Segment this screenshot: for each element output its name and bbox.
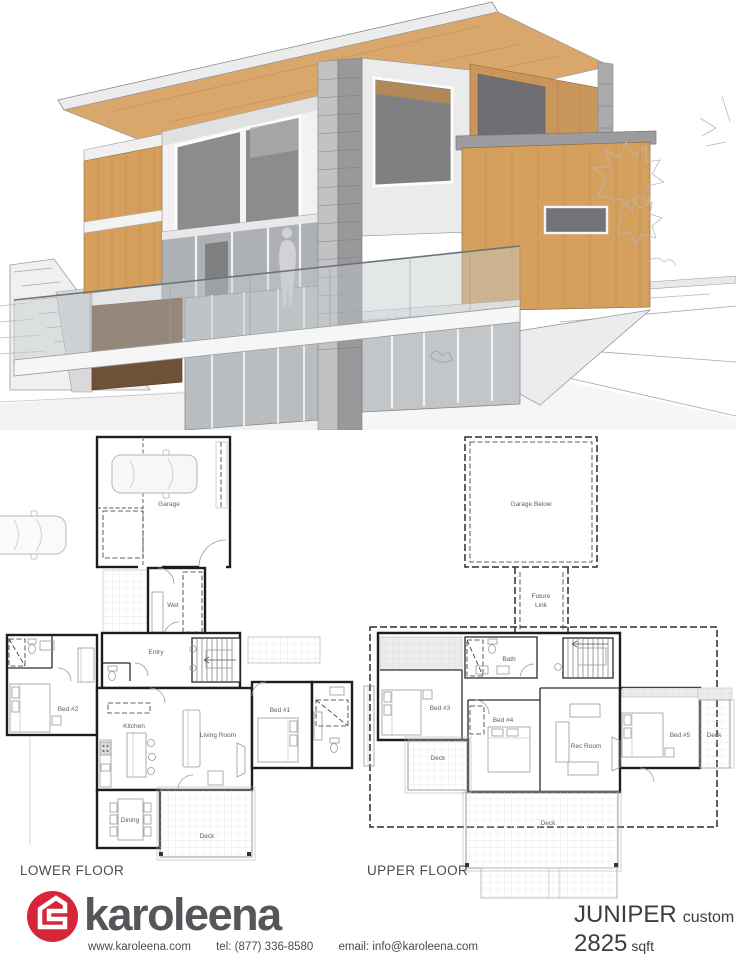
- lower-floor-plan: Garage Wet Entry: [0, 437, 352, 860]
- entry-hall: Entry: [102, 633, 320, 688]
- bed1-wing: Bed #1: [252, 682, 352, 768]
- area-unit: sqft: [631, 938, 654, 954]
- house-logo-icon: [27, 891, 78, 942]
- entry-porch: [248, 637, 320, 663]
- room-label-bed5: Bed #5: [670, 732, 691, 739]
- garage-below: Garage Below: [465, 437, 597, 567]
- room-label-kitchen: Kitchen: [123, 723, 145, 730]
- email-text: email: info@karoleena.com: [339, 941, 479, 953]
- room-label-garage-below: Garage Below: [510, 501, 551, 508]
- roof-hatch-right: [622, 688, 698, 697]
- floor-plans: Garage Wet Entry: [0, 430, 736, 905]
- floor-label-upper: UPPER FLOOR: [367, 863, 468, 878]
- staircase-lower: [190, 638, 240, 682]
- phone-text: tel: (877) 336-8580: [216, 941, 313, 953]
- staircase-upper: [555, 638, 613, 678]
- room-label-deck-left: Deck: [431, 755, 447, 762]
- room-label-bed1: Bed #1: [270, 707, 291, 714]
- left-wood-volume: [84, 134, 162, 294]
- room-label-wet: Wet: [167, 602, 179, 609]
- area-value: 2825: [574, 930, 627, 957]
- upper-floor-plan: Garage Below Future Link: [364, 437, 734, 898]
- room-label-bath: Bath: [502, 656, 516, 663]
- room-label-deck-bottom: Deck: [541, 820, 557, 827]
- upper-bath: Bath: [465, 637, 537, 678]
- model-name: JUNIPER: [574, 901, 677, 928]
- bed2-wing: Bed #2: [7, 635, 97, 735]
- upper-deck-right: Deck: [700, 700, 734, 768]
- room-label-entry: Entry: [148, 649, 164, 656]
- room-label-deck-right: Deck: [707, 732, 723, 739]
- room-label-bed3: Bed #3: [430, 705, 451, 712]
- future-link: Future Link: [515, 567, 568, 633]
- room-label-bed4: Bed #4: [493, 717, 514, 724]
- balcony-rail-strip: [364, 686, 374, 766]
- floor-label-lower: LOWER FLOOR: [20, 863, 124, 878]
- lower-deck: Deck: [157, 787, 255, 860]
- model-variant: custom: [683, 909, 735, 926]
- right-box-window: [545, 207, 607, 233]
- room-label-bed2: Bed #2: [58, 706, 79, 713]
- garden-wall: [648, 276, 736, 289]
- brand-wordmark: karoleena: [84, 889, 281, 941]
- central-column: [318, 58, 362, 430]
- room-label-garage: Garage: [158, 501, 180, 508]
- room-label-deck-lower: Deck: [200, 833, 216, 840]
- car-top-view-driveway: [0, 511, 66, 559]
- contact-line: www.karoleena.com tel: (877) 336-8580 em…: [88, 941, 500, 953]
- garage: Garage: [97, 437, 230, 567]
- wet-room: Wet: [103, 568, 205, 637]
- upper-middle-volume: [362, 58, 470, 236]
- house-3d-render: [0, 0, 736, 430]
- room-label-rec-room: Rec Room: [571, 743, 602, 750]
- room-label-dining: Dining: [121, 817, 140, 824]
- brand-logo: [27, 891, 78, 942]
- website-text: www.karoleena.com: [88, 941, 191, 953]
- roof-hatch-left: [380, 637, 462, 670]
- car-top-view-garage: [112, 450, 197, 498]
- upper-deck-left: Deck: [405, 737, 471, 793]
- room-label-future: Future: [532, 593, 551, 600]
- upper-deck-bottom: Deck: [463, 792, 621, 898]
- room-label-link: Link: [535, 602, 548, 609]
- model-block: JUNIPERcustom 2825sqft: [574, 903, 734, 956]
- room-label-living: Living Room: [200, 732, 236, 739]
